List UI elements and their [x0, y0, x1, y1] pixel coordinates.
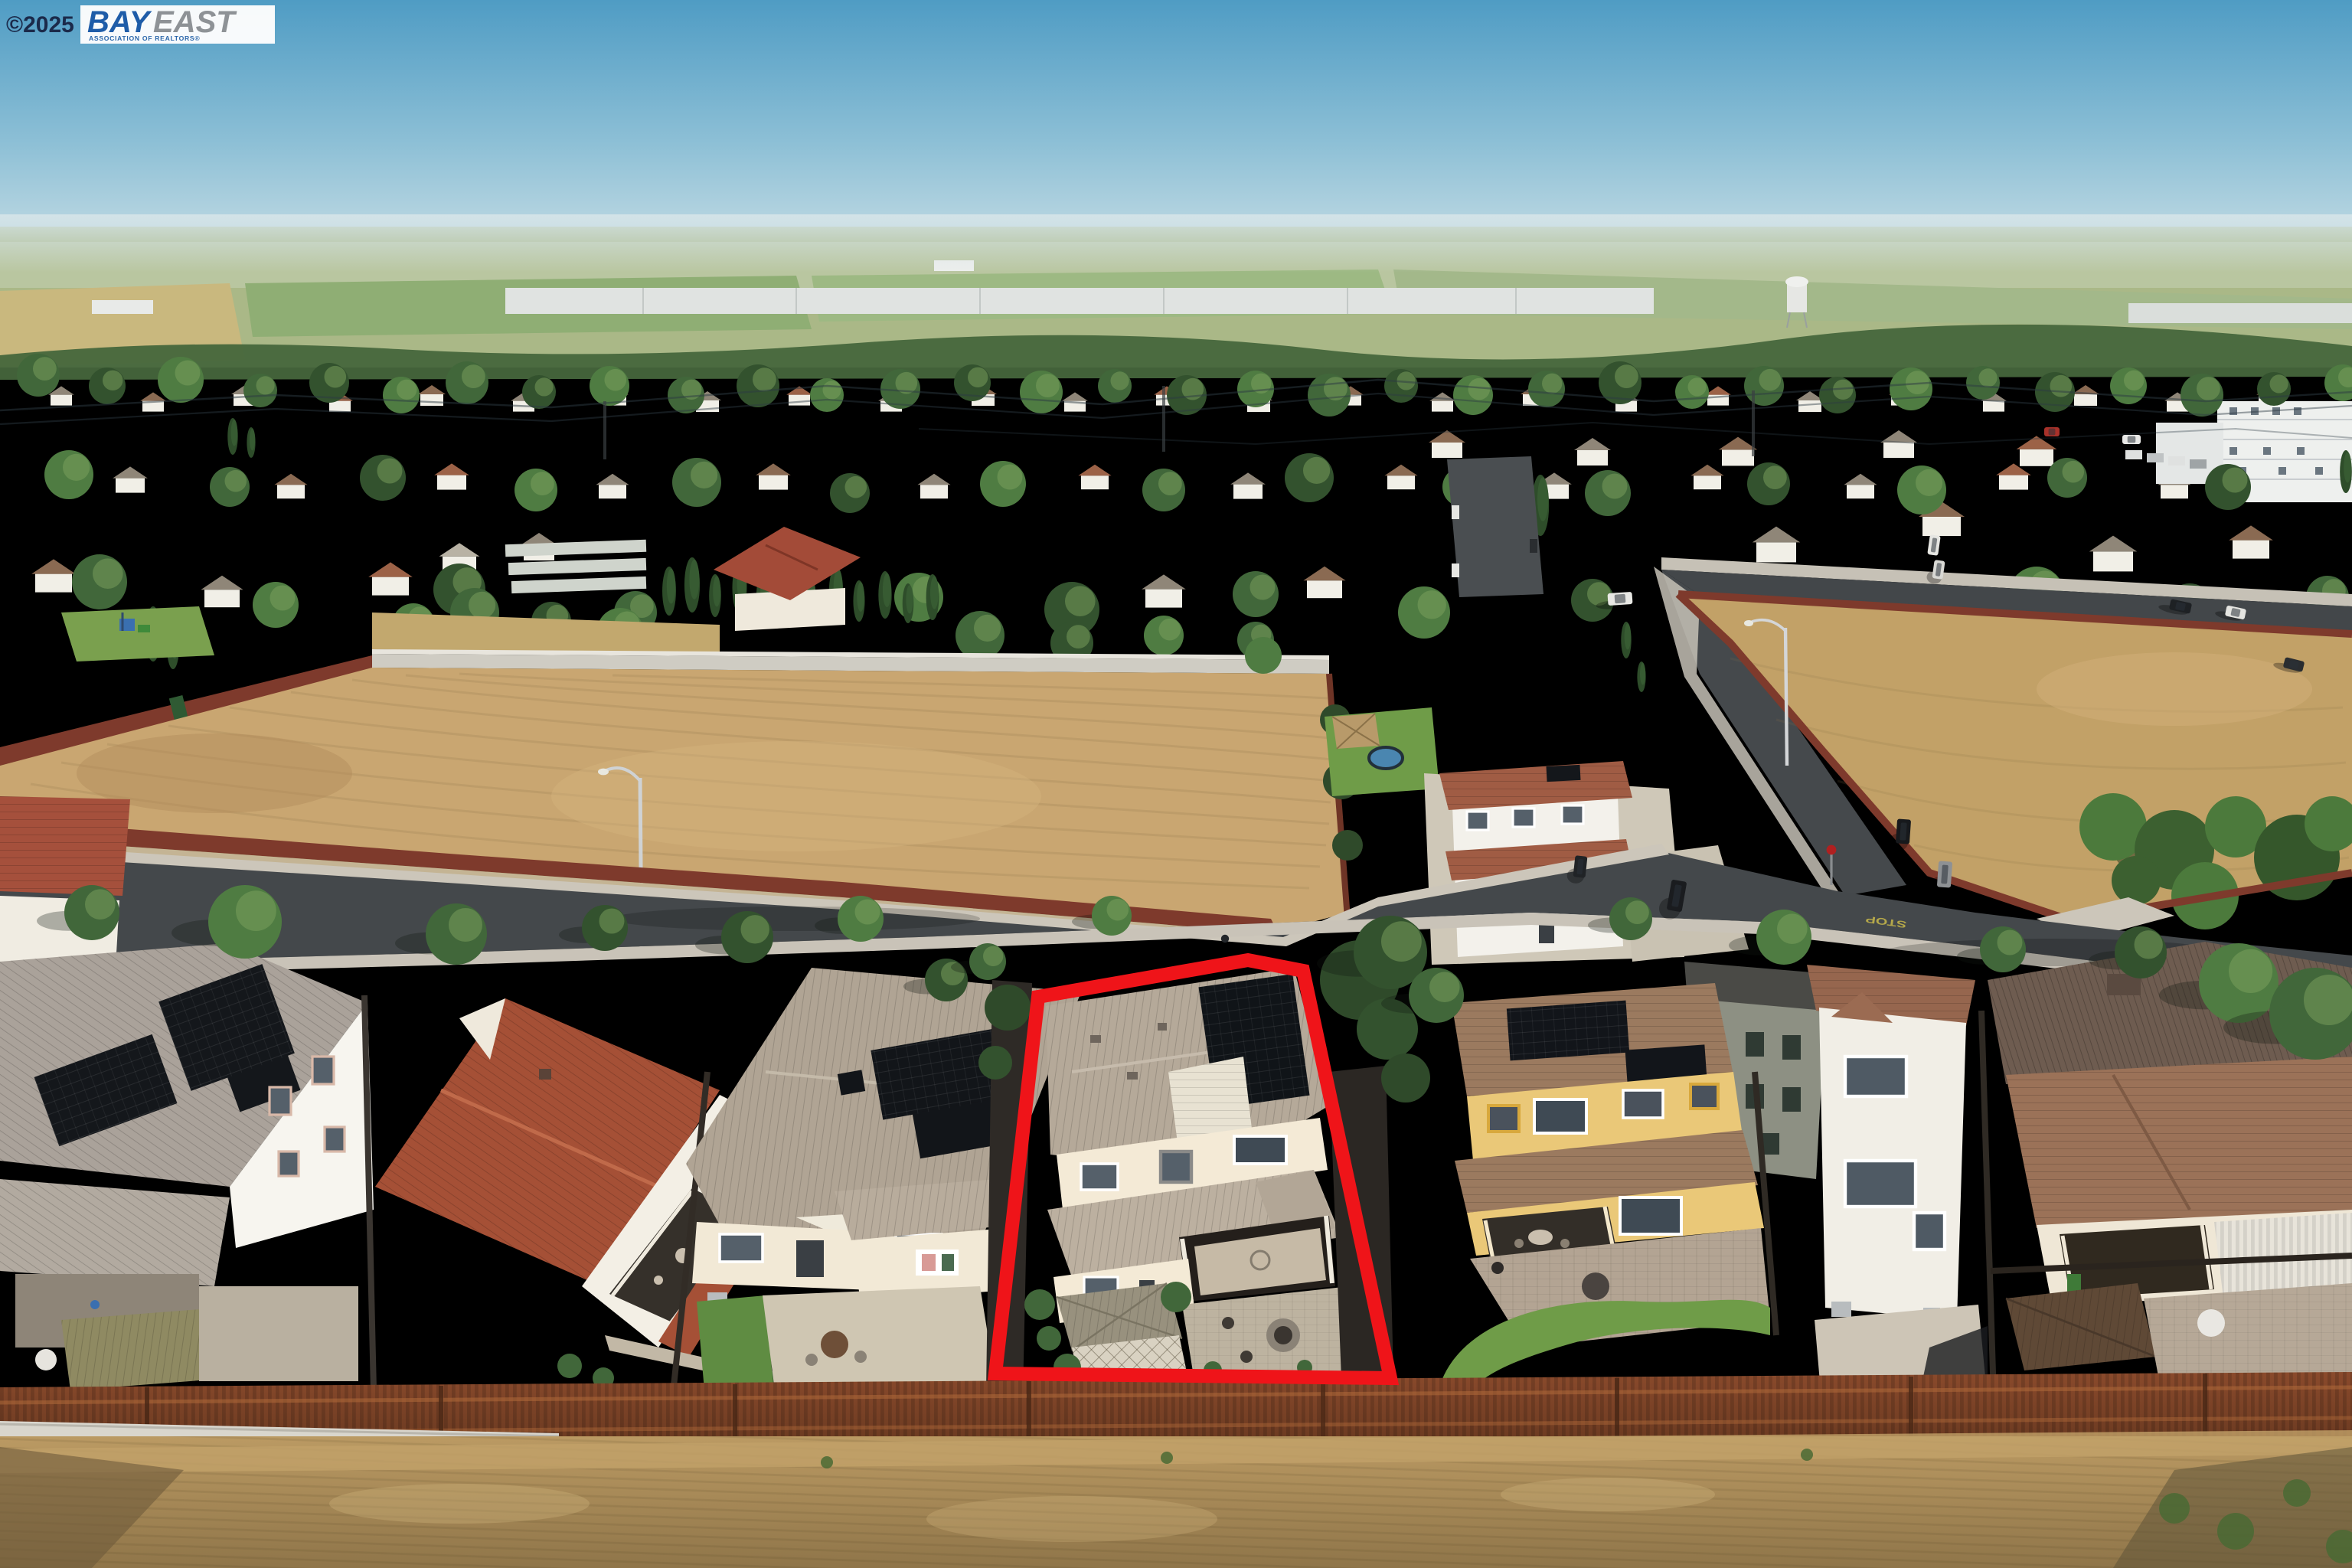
tree — [672, 458, 721, 507]
tree — [514, 469, 557, 511]
tree — [980, 461, 1026, 507]
tree — [383, 377, 420, 413]
pool-trampoline — [1369, 747, 1403, 769]
watermark-tagline: ASSOCIATION OF REALTORS® — [89, 34, 200, 42]
tree — [243, 374, 277, 407]
cypress-tree — [1621, 622, 1631, 658]
person-on-deck — [90, 1300, 100, 1309]
distant-house — [1384, 465, 1417, 489]
distant-house — [1429, 392, 1455, 411]
distant-house — [1574, 438, 1611, 465]
distant-house — [113, 466, 148, 492]
umbrella — [35, 1349, 57, 1370]
watermark-copyright: ©2025 — [6, 12, 74, 38]
distant-house — [1690, 465, 1723, 489]
tree — [44, 450, 93, 499]
street-back — [1447, 456, 1543, 597]
backyard-gazebo — [1332, 714, 1380, 749]
cypress-tree — [926, 574, 939, 620]
tree — [2205, 464, 2251, 510]
foreground-field — [0, 1430, 2352, 1568]
tree — [446, 361, 488, 404]
distant-house — [31, 559, 76, 592]
car — [2113, 435, 2141, 447]
bay-window — [1620, 1197, 1681, 1234]
cypress-tree — [1637, 661, 1645, 692]
distant-house — [2072, 385, 2099, 406]
distant-house — [1719, 437, 1757, 466]
greenhouses — [505, 540, 646, 593]
tree — [522, 375, 556, 409]
tree — [1285, 453, 1334, 502]
tree — [1585, 470, 1631, 516]
tree — [590, 366, 629, 406]
distant-house — [917, 474, 950, 498]
distant-house — [1303, 567, 1345, 598]
tree — [2047, 458, 2087, 498]
tree — [1453, 375, 1493, 415]
tree — [253, 582, 299, 628]
chimney — [539, 1069, 551, 1080]
tree — [1233, 571, 1279, 617]
distant-house — [1996, 463, 2031, 489]
cypress-tree — [2340, 450, 2352, 493]
distant-house — [1429, 430, 1465, 458]
distant-horizon — [0, 214, 2352, 380]
tree — [1675, 375, 1709, 409]
distant-house — [596, 474, 629, 498]
distant-house — [1880, 430, 1917, 458]
tree — [1571, 579, 1614, 622]
distant-house — [1230, 472, 1266, 498]
distant-house — [2089, 536, 2137, 572]
tree — [1308, 374, 1351, 416]
tree — [810, 378, 844, 412]
patio — [199, 1286, 358, 1381]
backyard-gazebo-dark — [2006, 1283, 2156, 1370]
cypress-tree — [247, 427, 255, 458]
tree — [210, 467, 250, 507]
cypress-tree — [662, 567, 676, 616]
aerial-photo: STOP — [0, 0, 2352, 1568]
screenshot-root: STOP — [0, 0, 2352, 1568]
tree — [737, 364, 779, 407]
tree — [360, 455, 406, 501]
distant-house — [274, 474, 307, 498]
tree — [1384, 369, 1418, 403]
tree — [1890, 367, 1932, 410]
lawn — [697, 1295, 773, 1390]
tree — [2110, 367, 2147, 404]
patio — [763, 1286, 995, 1390]
tree — [1142, 469, 1185, 511]
tree — [89, 367, 126, 404]
house-f-cream — [1807, 965, 1994, 1409]
distant-house — [756, 463, 791, 489]
playground — [61, 606, 214, 661]
fire-pit — [1582, 1272, 1609, 1300]
tree — [1528, 371, 1565, 407]
distant-house — [201, 576, 243, 607]
side-gap-shadow — [986, 980, 1032, 1393]
ac-unit — [1831, 1302, 1851, 1317]
cypress-tree — [878, 571, 891, 619]
tree — [17, 354, 60, 397]
distant-house — [1078, 465, 1111, 489]
tree — [1744, 366, 1784, 406]
tree — [830, 473, 870, 513]
tree — [1897, 465, 1946, 514]
umbrella — [821, 1331, 848, 1358]
tree — [955, 611, 1004, 660]
cypress-tree — [903, 583, 914, 623]
tree — [1144, 616, 1184, 655]
backyard-ground — [372, 612, 720, 655]
house-e-yellow — [1436, 983, 1776, 1401]
distant-house — [1844, 474, 1877, 498]
tree — [158, 357, 204, 403]
distant-house — [2017, 436, 2057, 466]
distant-house — [1753, 527, 1800, 563]
distant-house — [1142, 574, 1186, 607]
tree — [1747, 462, 1790, 505]
cypress-tree — [684, 557, 700, 612]
distant-house — [2229, 525, 2273, 558]
cypress-tree — [227, 418, 237, 455]
solar-array — [1547, 765, 1581, 782]
tree — [1966, 366, 2000, 400]
tree — [2257, 372, 2291, 406]
fire-pit — [1274, 1326, 1292, 1344]
cypress-tree — [709, 574, 721, 617]
umbrella — [2197, 1309, 2225, 1337]
trash-bin — [2067, 1274, 2081, 1292]
distant-house — [434, 463, 469, 489]
subject-house — [1024, 940, 1430, 1383]
car — [2037, 427, 2060, 439]
distant-house — [368, 562, 413, 595]
wall-tree — [1245, 637, 1282, 674]
tree — [1819, 377, 1856, 413]
cypress-tree — [853, 580, 864, 622]
tree — [2180, 374, 2223, 416]
car — [1921, 534, 1940, 561]
tree — [1098, 369, 1132, 403]
tree — [72, 554, 127, 609]
tree — [1398, 586, 1450, 639]
horizon-haze — [0, 214, 2352, 273]
tree — [1020, 371, 1063, 413]
